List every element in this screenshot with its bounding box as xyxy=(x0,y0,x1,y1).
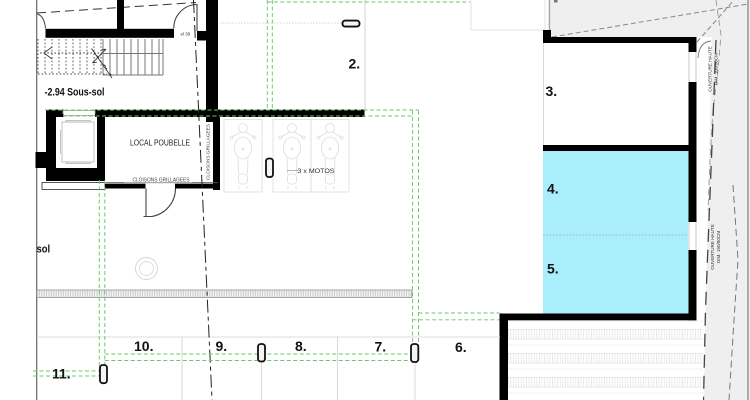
svg-text:4.: 4. xyxy=(547,181,559,197)
svg-text:LOCAL POUBELLE: LOCAL POUBELLE xyxy=(130,139,190,148)
svg-text:10.: 10. xyxy=(134,338,153,354)
svg-text:OUVERTURE HAUTE: OUVERTURE HAUTE xyxy=(708,46,713,92)
svg-text:11.: 11. xyxy=(52,366,71,382)
svg-text:3.: 3. xyxy=(546,83,558,99)
svg-text:3 x MOTOS: 3 x MOTOS xyxy=(298,168,335,175)
svg-text:CLOISONS GRILLAGEES: CLOISONS GRILLAGEES xyxy=(133,178,191,184)
svg-text:DIM. 100/80CM: DIM. 100/80CM xyxy=(714,53,719,85)
svg-text:2.: 2. xyxy=(349,56,361,72)
svg-text:-2.94 Sous-sol: -2.94 Sous-sol xyxy=(45,87,105,99)
svg-text:CLOISONS GRILLAGEES: CLOISONS GRILLAGEES xyxy=(206,124,212,180)
svg-text:8.: 8. xyxy=(295,338,307,354)
svg-text:DIM. 190/80CM: DIM. 190/80CM xyxy=(716,231,721,263)
svg-text:sol: sol xyxy=(37,244,51,256)
svg-text:7.: 7. xyxy=(375,339,387,355)
svg-text:el 30: el 30 xyxy=(181,32,191,37)
svg-text:9.: 9. xyxy=(216,338,228,354)
svg-text:6.: 6. xyxy=(455,339,467,355)
svg-text:OUVERTURE HAUTE: OUVERTURE HAUTE xyxy=(710,224,715,270)
svg-text:5.: 5. xyxy=(547,261,559,277)
